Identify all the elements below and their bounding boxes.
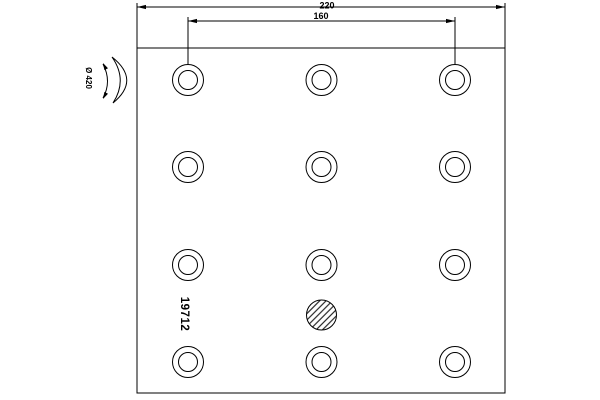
- lining-plate-outline: [137, 48, 505, 393]
- rivet-hole-outer-circle: [440, 250, 471, 281]
- rivet-hole-outer-circle: [440, 347, 471, 378]
- brake-lining-drawing: 220 160 Ø 420 19712: [0, 0, 600, 400]
- drum-diameter-label: Ø 420: [84, 67, 93, 89]
- rivet-hole: [440, 152, 471, 183]
- arrowhead-right: [446, 19, 455, 23]
- rivet-hole: [306, 250, 337, 281]
- rivet-hole: [173, 250, 204, 281]
- arrowhead-top: [103, 63, 108, 70]
- rivet-hole: [306, 152, 337, 183]
- arrowhead-left: [188, 19, 197, 23]
- arrowhead-bottom: [103, 92, 108, 99]
- arrowhead-right: [496, 5, 505, 9]
- rivet-hole-outer-circle: [440, 65, 471, 96]
- overall-width-label: 220: [319, 1, 334, 11]
- rivet-hole: [440, 65, 471, 96]
- rivet-hole: [173, 65, 204, 96]
- curvature-annotation: Ø 420: [84, 57, 127, 103]
- rivet-hole-outer-circle: [440, 152, 471, 183]
- rivet-hole-outer-circle: [306, 65, 337, 96]
- rivet-hole-outer-circle: [306, 347, 337, 378]
- lining-curvature-profile: [112, 57, 127, 103]
- rivet-hole-outer-circle: [306, 152, 337, 183]
- rivet-hole-outer-circle: [306, 250, 337, 281]
- rivet-hole: [306, 347, 337, 378]
- rivet-hole-outer-circle: [173, 65, 204, 96]
- technical-drawing-page: 220 160 Ø 420 19712: [0, 0, 600, 400]
- rivet-hole-outer-circle: [173, 347, 204, 378]
- rivet-hole: [306, 65, 337, 96]
- rivet-hole: [173, 152, 204, 183]
- rivet-span-label: 160: [313, 11, 328, 21]
- rivet-hole-outer-circle: [173, 250, 204, 281]
- rivet-hole: [440, 347, 471, 378]
- rivet-hole-outer-circle: [173, 152, 204, 183]
- dimension-overall-width: 220: [137, 1, 505, 49]
- arrowhead-left: [137, 5, 146, 9]
- wear-indicator-hole: [307, 300, 337, 330]
- part-number: 19712: [178, 297, 190, 331]
- rivet-hole: [440, 250, 471, 281]
- rivet-hole: [173, 347, 204, 378]
